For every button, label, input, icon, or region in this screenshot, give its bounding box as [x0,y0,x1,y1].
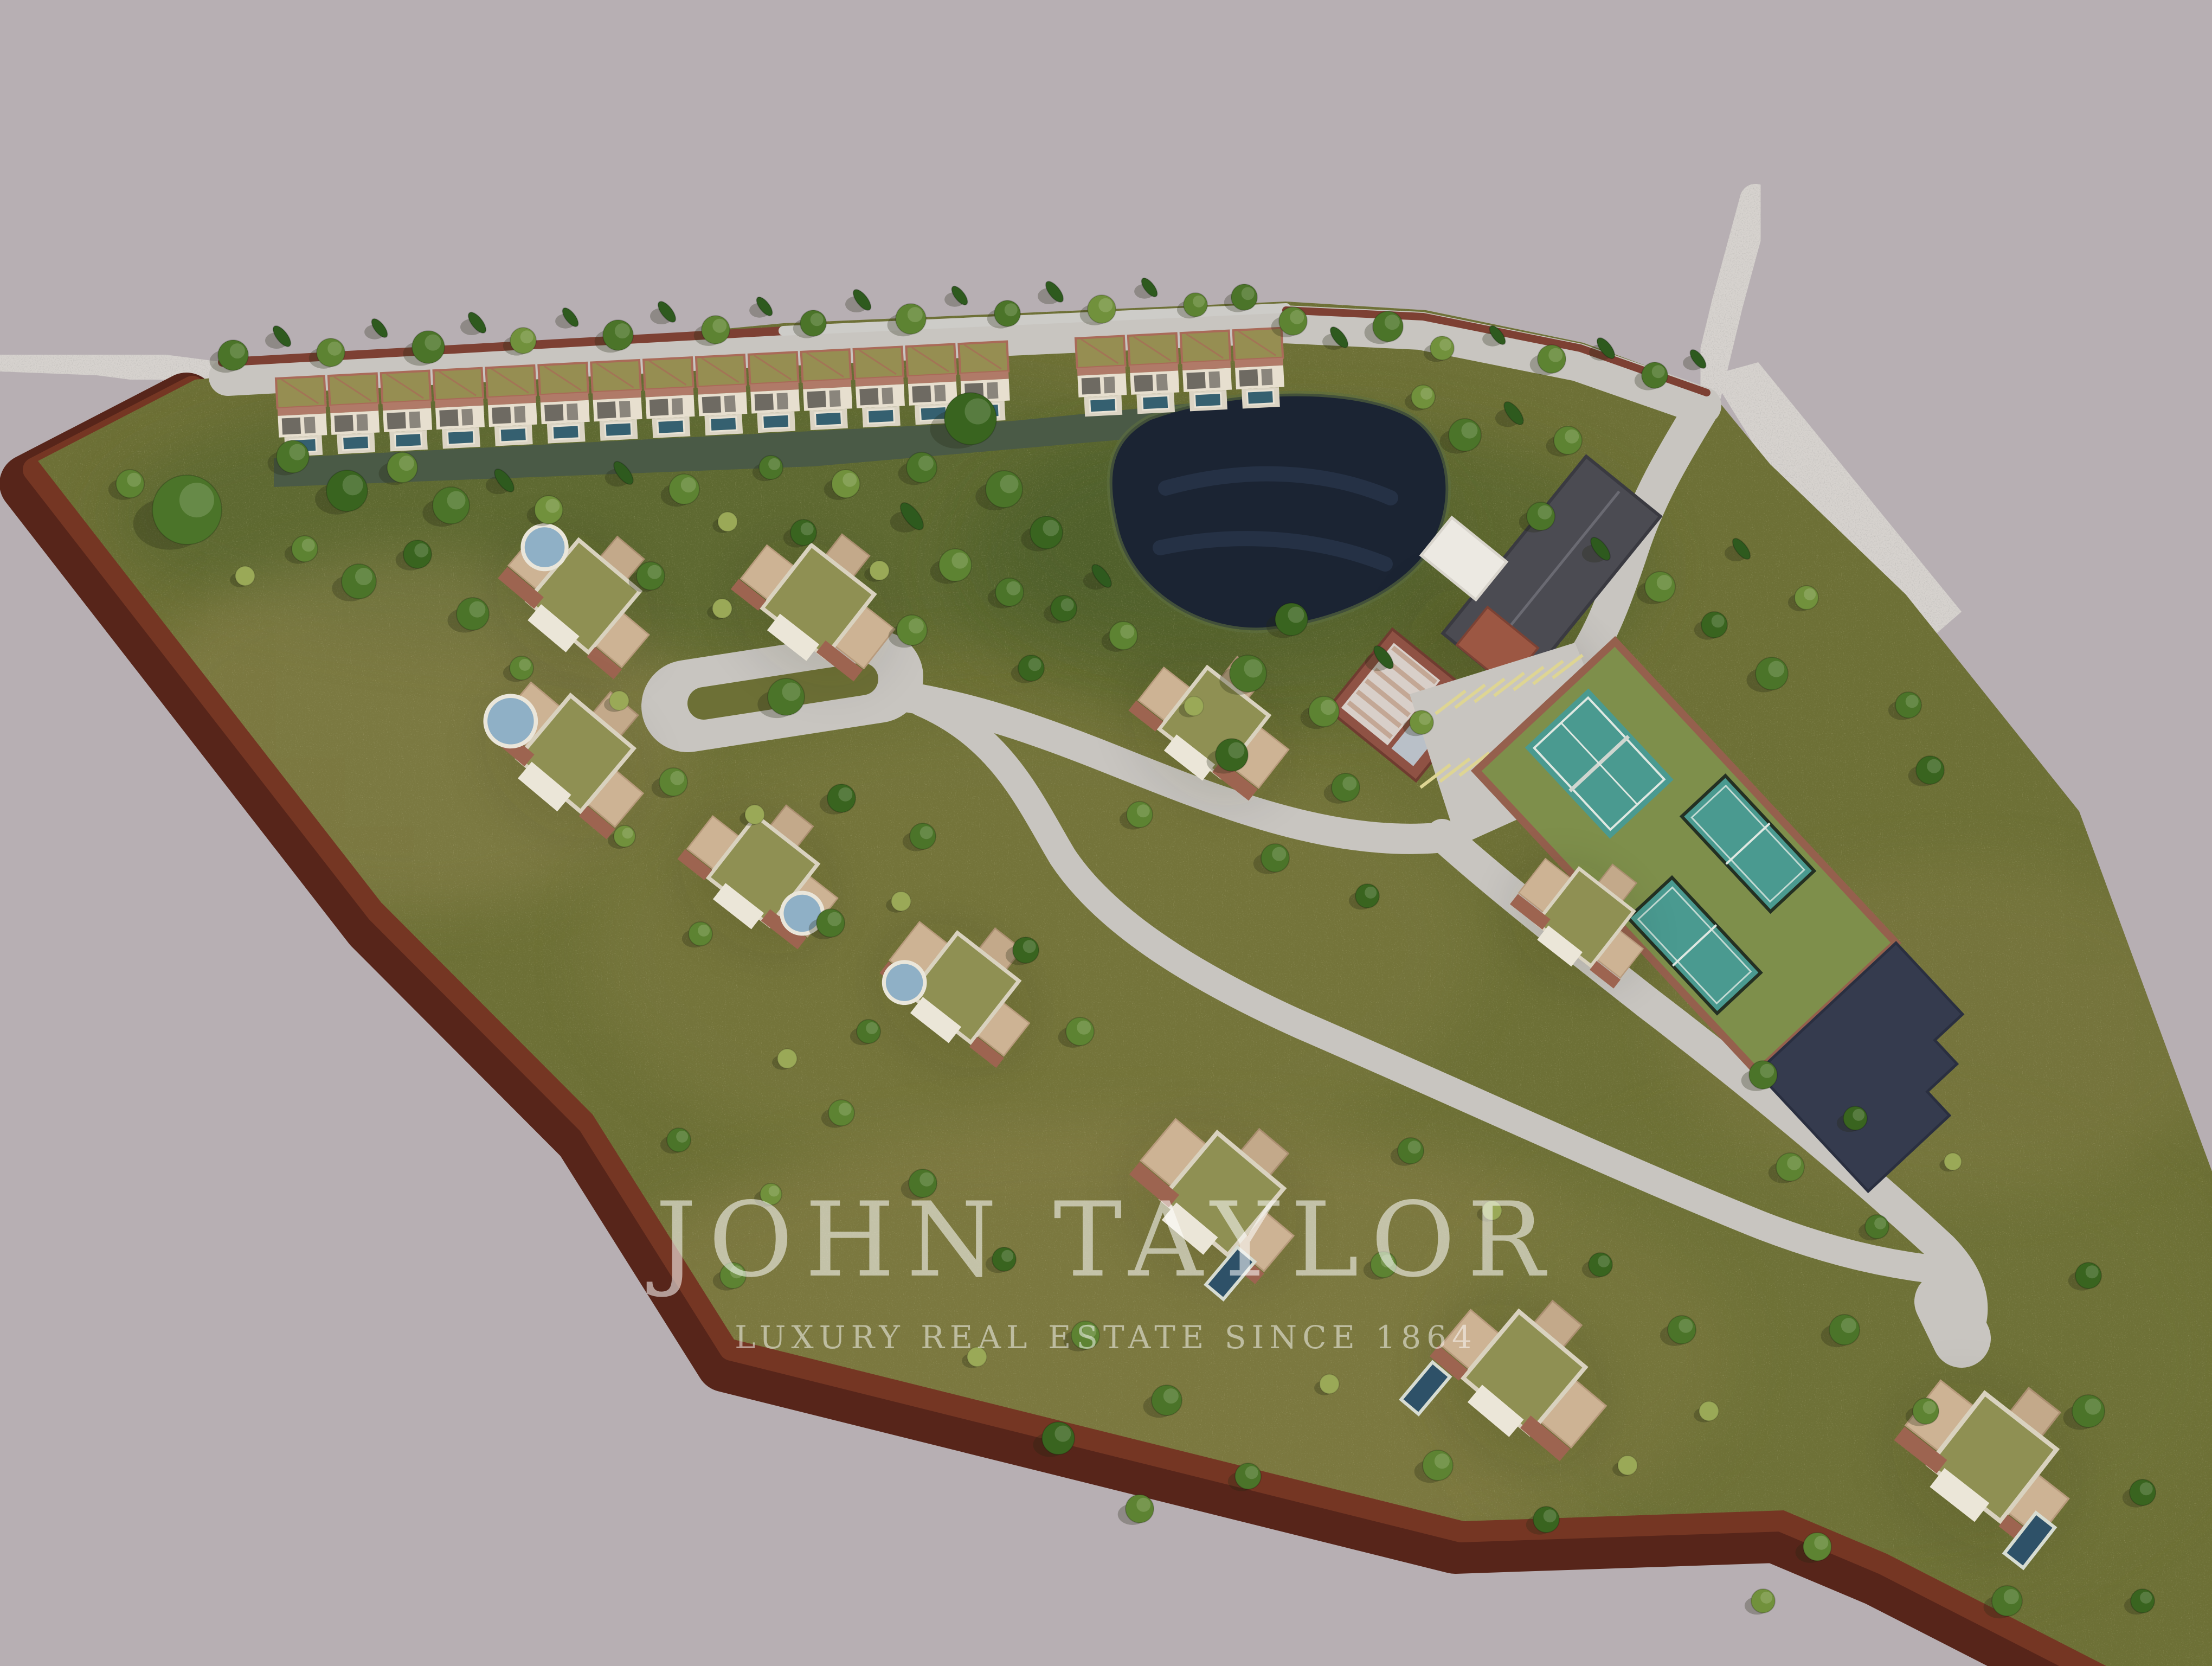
facade-window [755,394,774,411]
scene-root [0,0,2212,1666]
facade-door [724,395,736,412]
facade-window [912,386,931,403]
tree-highlight [545,499,560,513]
tree-highlight [1679,1319,1693,1333]
tree-highlight [1927,759,1941,773]
tree-highlight [1228,742,1244,759]
plunge-pool [1194,393,1221,407]
facade-window [387,412,406,430]
plunge-pool [447,431,474,445]
tree-highlight [425,335,441,351]
tree-highlight [1657,575,1672,590]
tree-highlight [1272,847,1286,861]
tree-highlight [801,522,814,535]
tree-highlight [1288,607,1304,623]
facade-window [439,409,458,427]
facade-door [829,390,840,407]
tree-highlight [2085,1399,2101,1415]
tree-highlight [1077,1021,1091,1035]
shrub-crown [1320,1374,1339,1394]
tree-highlight [964,399,991,425]
tree-highlight [343,475,363,495]
facade-window [1082,377,1101,395]
tree-highlight [520,330,533,343]
tree-highlight [1853,1109,1864,1121]
tree-highlight [768,458,780,470]
tree-highlight [230,343,245,358]
tree-highlight [827,912,841,926]
tree-highlight [1760,1064,1774,1078]
plunge-pool [763,414,789,428]
facade-door [882,387,893,404]
shrub-crown [235,566,255,586]
tree-highlight [1548,348,1562,362]
tree-highlight [1760,1592,1772,1604]
facade-door [461,409,473,426]
facade-door [777,393,788,409]
tree-highlight [782,682,801,701]
shrub-crown [1618,1456,1637,1475]
tree-highlight [1923,1401,1936,1414]
shrub-crown [718,512,737,531]
tree-highlight [327,342,342,356]
tree-highlight [1163,1388,1179,1404]
tree-highlight [866,1022,878,1034]
shrub-crown [870,561,889,580]
shrub-crown [777,1049,797,1068]
tree-highlight [1419,713,1431,725]
tree-highlight [1365,887,1377,899]
shrub-crown [891,892,911,911]
tree-highlight [1544,1509,1557,1522]
render-stage: JOHN TAYLOR LUXURY REAL ESTATE SINCE 186… [0,0,2212,1666]
plunge-pool [658,420,684,434]
facade-window [335,415,353,432]
tree-highlight [1120,625,1134,639]
tree-highlight [1342,777,1356,791]
plunge-pool [815,412,841,426]
shrub-crown [1944,1153,1962,1170]
tree-highlight [839,1103,852,1116]
tree-highlight [1652,365,1665,378]
tree-highlight [2004,1589,2019,1604]
plunge-pool [710,417,737,431]
tree-highlight [1461,422,1477,439]
facade-window [597,401,616,419]
tree-highlight [647,565,661,579]
tree-highlight [469,601,485,618]
tree-highlight [1435,1453,1450,1469]
tree-highlight [811,313,824,326]
tree-highlight [519,659,531,671]
tree-highlight [1136,1498,1150,1512]
plunge-pool [395,433,421,447]
tree-highlight [1028,658,1041,671]
tree-highlight [1538,505,1552,520]
tree-highlight [1408,1140,1421,1154]
tree-highlight [1906,695,1919,708]
facade-window [807,391,826,408]
tree-highlight [1061,598,1074,611]
tree-highlight [951,553,968,569]
facade-window [544,404,563,421]
facade-door [356,414,368,431]
tree-highlight [1137,804,1150,817]
tree-highlight [1000,475,1019,493]
facade-door [409,412,420,428]
tree-highlight [1005,303,1018,316]
facade-window [859,388,878,406]
tree-highlight [2140,1592,2152,1604]
tree-highlight [179,483,214,517]
tree-highlight [1244,659,1263,677]
tree-highlight [1768,661,1784,677]
tree-highlight [838,787,852,802]
tree-highlight [909,618,924,633]
tree-highlight [302,539,315,552]
facade-window [282,418,301,435]
tree-highlight [1874,1218,1886,1229]
tree-highlight [676,1131,688,1143]
tree-highlight [1245,1466,1258,1479]
east-road-end [1944,1302,1962,1338]
watermark-tagline: LUXURY REAL ESTATE SINCE 1864 [735,1319,1477,1356]
tree-highlight [908,307,923,322]
tree-highlight [399,456,414,471]
facade-door [1261,369,1272,386]
facade-door [1156,374,1167,390]
tree-highlight [1290,310,1304,324]
plunge-pool [552,425,579,439]
tree-highlight [1565,430,1579,444]
tree-highlight [1321,700,1336,715]
facade-door [1104,376,1115,393]
plunge-pool [500,428,526,442]
facade-door [514,406,525,423]
tree-highlight [127,473,141,487]
plunge-pool [605,422,632,437]
tree-highlight [1098,298,1113,312]
shrub-crown [1184,696,1204,716]
site-plan-render: JOHN TAYLOR LUXURY REAL ESTATE SINCE 186… [0,0,2212,1666]
tree-highlight [1385,315,1400,330]
tree-highlight [1420,388,1432,400]
tree-highlight [289,444,305,460]
shrub-crown [1699,1401,1719,1421]
tree-highlight [681,477,696,492]
facade-door [304,416,316,433]
facade-window [702,396,721,413]
facade-door [934,385,946,402]
tree-highlight [1023,940,1036,953]
shrub-crown [609,691,629,710]
tree-highlight [1804,588,1816,600]
tree-highlight [1054,1426,1071,1442]
plunge-pool [1142,395,1169,409]
tree-highlight [1712,614,1725,627]
shrub-crown [712,599,732,618]
shrub-crown [745,805,764,824]
tree-highlight [447,491,466,509]
tree-highlight [918,456,934,471]
tree-highlight [1841,1318,1856,1333]
plunge-pool [867,409,894,423]
facade-door [619,401,631,418]
tree-highlight [698,925,710,937]
plunge-pool [343,435,369,450]
tree-highlight [1598,1255,1610,1267]
tree-highlight [615,323,630,338]
facade-door [567,403,578,420]
watermark-brand: JOHN TAYLOR [647,1180,1557,1300]
facade-window [1186,372,1205,389]
tree-highlight [1787,1156,1801,1170]
tree-highlight [1242,287,1255,300]
tree-highlight [920,826,933,839]
tree-highlight [414,543,428,558]
facade-door [672,398,683,415]
facade-window [650,399,668,416]
tree-highlight [1439,339,1451,351]
tree-highlight [712,319,726,333]
facade-window [492,407,511,424]
facade-door [987,382,998,399]
plunge-pool [1247,390,1274,405]
tree-highlight [622,828,633,838]
tree-highlight [1006,581,1020,595]
tree-highlight [355,568,372,585]
tree-highlight [1193,296,1205,307]
facade-door [1208,371,1220,388]
tree-highlight [2140,1482,2153,1495]
tree-highlight [670,771,684,785]
plunge-pool [1090,398,1116,412]
facade-window [1239,369,1258,387]
tree-highlight [843,473,857,487]
facade-window [1134,375,1153,392]
watermark: JOHN TAYLOR LUXURY REAL ESTATE SINCE 186… [647,1180,1557,1356]
tree-highlight [1043,520,1059,536]
tree-highlight [1814,1536,1828,1550]
tree-highlight [2086,1265,2099,1278]
